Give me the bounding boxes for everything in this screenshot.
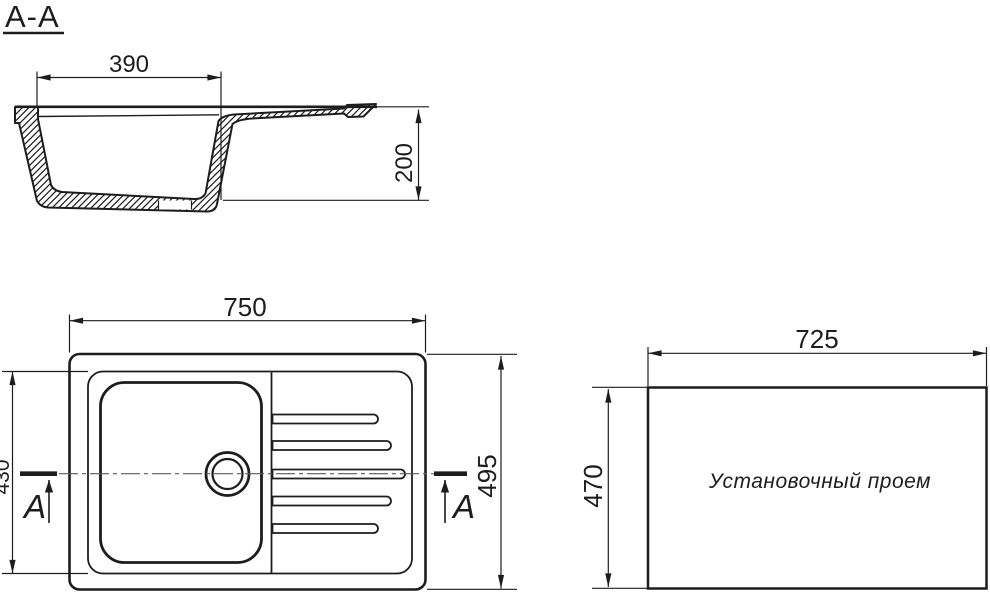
dim-470-label: 470	[578, 464, 608, 507]
sink-section-shell	[15, 104, 376, 212]
dimension-390: 390	[37, 51, 221, 200]
dimension-725: 725	[648, 324, 987, 386]
dim-725-label: 725	[795, 324, 838, 354]
technical-drawing-sheet: A-A 390 200	[0, 0, 990, 594]
section-view-title: A-A	[5, 0, 60, 34]
groove	[273, 441, 392, 450]
bowl-outline	[101, 383, 262, 563]
top-view: A A 750 430 495	[0, 292, 517, 590]
dim-750-label: 750	[223, 292, 266, 322]
dimension-470: 470	[578, 387, 647, 588]
drawing-canvas: A-A 390 200	[0, 0, 990, 594]
drain-gap	[159, 201, 192, 210]
section-view: A-A 390 200	[3, 0, 429, 212]
sink-outer-outline	[70, 354, 426, 590]
groove	[273, 497, 392, 506]
dim-430-label: 430	[0, 459, 14, 494]
installation-view: Установочный проем 725 470	[578, 324, 987, 589]
groove	[273, 524, 379, 533]
dimension-750: 750	[70, 292, 426, 353]
dim-200-label: 200	[391, 143, 418, 183]
installation-opening-label: Установочный проем	[708, 470, 931, 493]
groove	[273, 415, 379, 424]
dim-495-label: 495	[472, 454, 502, 497]
dimension-200: 200	[223, 107, 429, 201]
cut-label-left: A	[22, 488, 46, 525]
cut-mark-left: A	[20, 474, 57, 525]
cut-mark-right: A	[434, 474, 475, 525]
dim-390-label: 390	[109, 51, 149, 78]
rim-inner-edge	[38, 115, 219, 117]
